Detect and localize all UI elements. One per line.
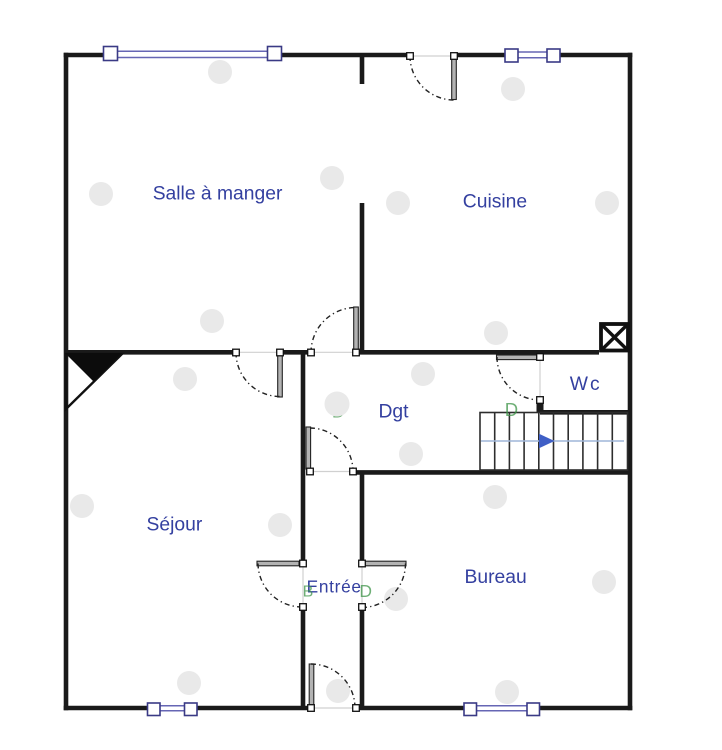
svg-text:B: B	[303, 584, 314, 601]
svg-text:Cuisine: Cuisine	[463, 191, 527, 212]
svg-text:D: D	[505, 399, 518, 420]
svg-text:Bureau: Bureau	[465, 567, 527, 588]
svg-text:Salle à manger: Salle à manger	[153, 183, 283, 204]
svg-text:D: D	[359, 581, 372, 601]
svg-text:Wc: Wc	[570, 374, 602, 395]
svg-text:Entrée: Entrée	[307, 577, 362, 597]
svg-text:Séjour: Séjour	[147, 515, 203, 536]
svg-text:Dgt: Dgt	[379, 402, 410, 423]
